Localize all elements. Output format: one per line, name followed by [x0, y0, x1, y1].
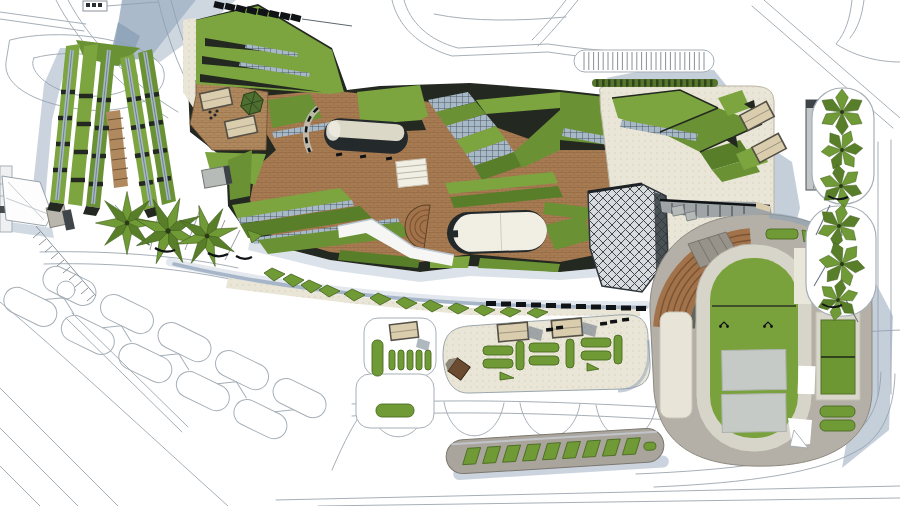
- parking-strip: [574, 50, 718, 87]
- white-pavilion-roof-north: [323, 117, 409, 155]
- utility-box: [83, 1, 107, 11]
- sports-court: [722, 349, 787, 390]
- white-pavilion-roof-south: [446, 209, 547, 254]
- canopy-tree-islands: [806, 88, 876, 327]
- plaza-canopy: [389, 322, 418, 341]
- courtyard-stairs: [396, 159, 429, 188]
- plaza-canopy: [497, 322, 528, 342]
- master-plan-canvas: [0, 0, 900, 506]
- linear-green-roof-towers: [47, 40, 176, 218]
- west-walkway: [660, 312, 692, 418]
- southwest-plaza: [356, 318, 436, 428]
- site-plan-rendering: [0, 0, 900, 506]
- sports-court: [722, 393, 787, 432]
- plaza-canopy: [551, 318, 582, 338]
- south-plaza-with-hedges: [443, 315, 650, 393]
